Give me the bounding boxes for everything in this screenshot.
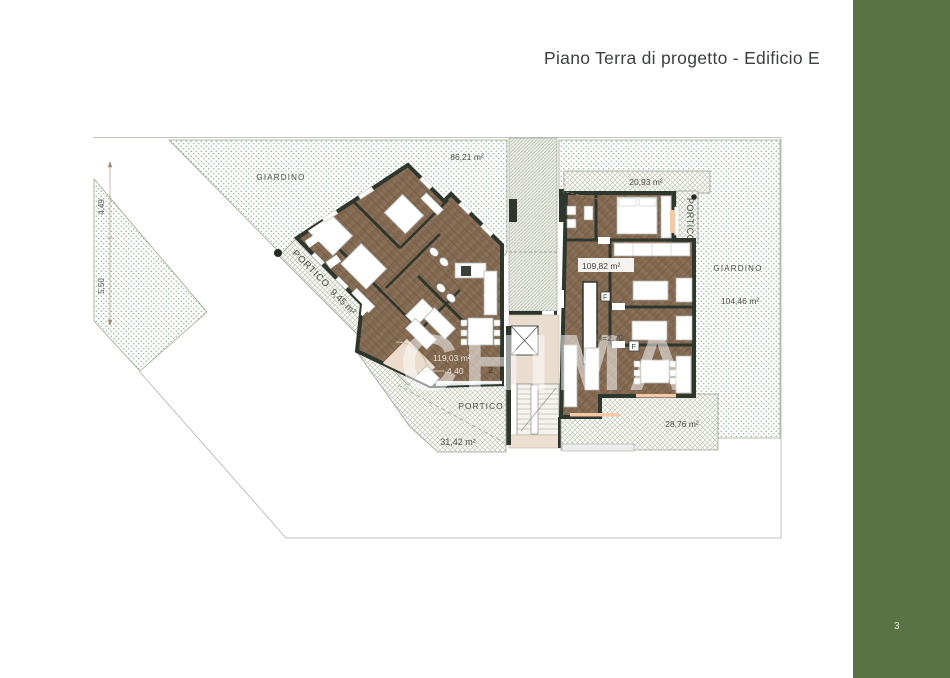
svg-text:86,21 m²: 86,21 m² <box>450 152 484 162</box>
svg-text:4,49: 4,49 <box>97 199 106 215</box>
svg-text:PORTICO: PORTICO <box>685 198 695 242</box>
svg-text:31,42 m²: 31,42 m² <box>440 437 476 447</box>
svg-text:F: F <box>603 295 607 302</box>
svg-text:109,82 m²: 109,82 m² <box>582 261 620 271</box>
svg-text:104,46 m²: 104,46 m² <box>721 296 759 306</box>
svg-text:28,76 m²: 28,76 m² <box>665 419 699 429</box>
svg-text:5,50: 5,50 <box>97 278 106 294</box>
svg-text:20,93 m²: 20,93 m² <box>629 177 663 187</box>
svg-text:3: 3 <box>894 621 900 632</box>
svg-text:H=2.70: H=2.70 <box>596 333 624 343</box>
svg-text:CHIMA: CHIMA <box>400 318 692 407</box>
svg-text:GIARDINO: GIARDINO <box>713 264 762 273</box>
svg-text:GIARDINO: GIARDINO <box>256 173 305 182</box>
svg-text:Piano Terra di progetto - Edif: Piano Terra di progetto - Edificio E <box>544 48 820 68</box>
